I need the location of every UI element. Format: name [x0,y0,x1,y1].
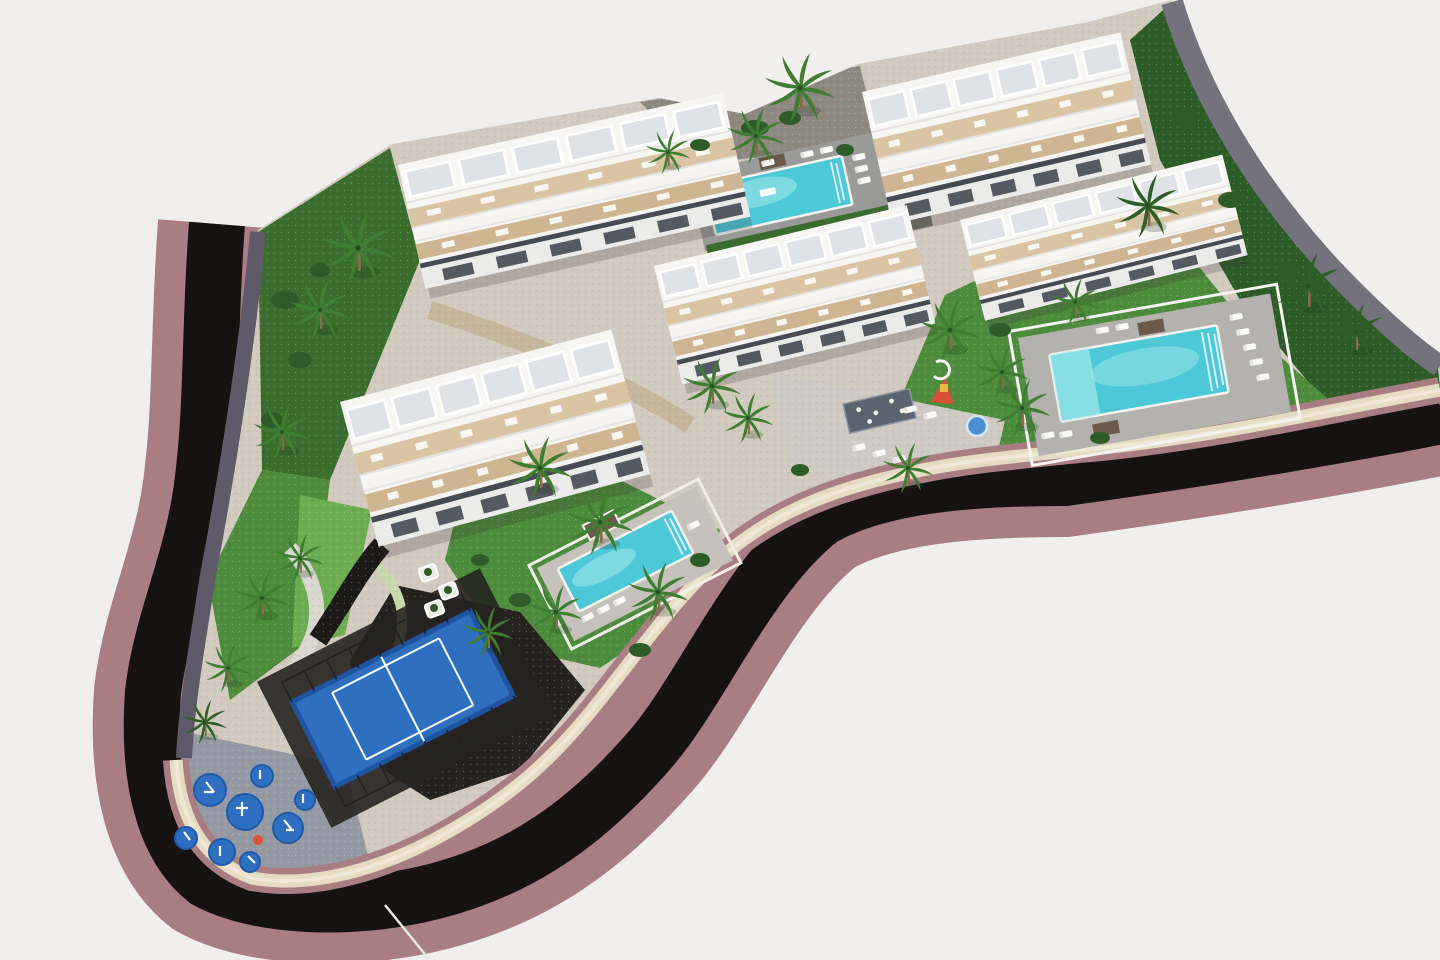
site-render [0,0,1440,960]
play-tower [940,384,948,392]
pad-accent [253,835,263,845]
render-stage [0,0,1440,960]
splash-pool [967,416,987,436]
